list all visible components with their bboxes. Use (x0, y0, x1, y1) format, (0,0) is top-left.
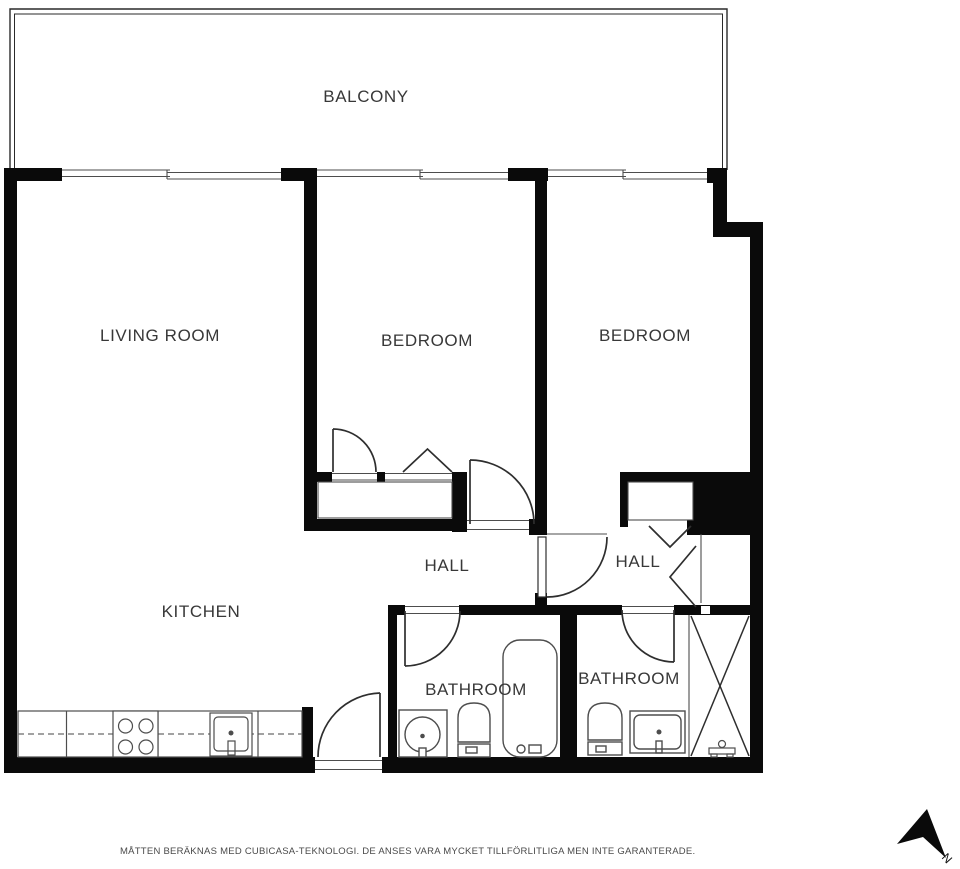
wall-right-step-vertical (713, 181, 727, 237)
room-label-hall-1: HALL (425, 556, 470, 576)
closet1-door-arc (333, 429, 376, 472)
bathroom1-door-arc (405, 611, 460, 666)
stove (113, 711, 158, 757)
bathroom2-fixtures (588, 703, 735, 757)
wall-counter-stub (302, 707, 313, 757)
front-door (318, 693, 380, 757)
window-bedroom-1 (317, 168, 508, 181)
sink-faucet-dot (229, 731, 234, 736)
room-label-hall-2: HALL (616, 552, 661, 572)
kitchen-sink (210, 713, 252, 756)
wall-bottom-left (4, 757, 315, 773)
hall2-closet-door-mark (670, 546, 696, 607)
room-label-balcony: BALCONY (323, 87, 408, 107)
wall-left (4, 168, 17, 773)
wall-bathrooms-top-c (674, 605, 763, 615)
bedroom2-door-leaf (538, 537, 546, 597)
interior-walls (302, 181, 763, 757)
toilet (458, 703, 490, 757)
bathroom2-door-arc (622, 610, 674, 662)
bathroom2-door (622, 610, 674, 662)
floor-plan-drawing: N (0, 0, 960, 869)
north-arrow-icon (897, 809, 946, 858)
thin-lines (315, 474, 701, 770)
toilet (588, 703, 622, 755)
wall-top-block-2 (508, 168, 548, 181)
room-label-bedroom-1: BEDROOM (381, 331, 473, 351)
shaft-valve (709, 741, 735, 758)
wall-closet2-block (687, 472, 750, 535)
front-door-arc (318, 693, 380, 757)
washbasin (630, 711, 685, 753)
wall-top-right-block (707, 168, 727, 183)
closet2-recess-outline (628, 482, 693, 520)
room-label-bathroom-1: BATHROOM (425, 680, 527, 700)
room-label-bedroom-2: BEDROOM (599, 326, 691, 346)
wall-closet2-left-stub (620, 472, 628, 527)
wall-right (750, 222, 763, 773)
closet1-door (333, 429, 376, 472)
bedroom2-door (538, 537, 607, 597)
wall-bathrooms-divider (560, 605, 577, 757)
wall-bedroom1-right (535, 181, 547, 535)
bathroom1-door (405, 611, 460, 666)
wall-closet1-top-a (317, 472, 332, 482)
bedroom1-door (470, 460, 534, 524)
room-label-living-room: LIVING ROOM (100, 326, 220, 346)
bedroom2-door-arc (547, 537, 607, 597)
windows (62, 168, 707, 181)
wall-bedroom1-bottom (304, 519, 467, 531)
wall-bottom-right (382, 757, 763, 773)
wall-bedroom1-left (304, 181, 317, 531)
wall-closet1-top-b (377, 472, 385, 482)
room-label-bathroom-2: BATHROOM (578, 669, 680, 689)
closet2-bifold-mark (649, 526, 691, 547)
hall2-closet-threshold (701, 606, 710, 614)
wall-bathroom1-left (388, 605, 397, 757)
floor-plan-page: N BALCONY LIVING ROOM BEDROOM BEDROOM HA… (0, 0, 960, 869)
room-label-kitchen: KITCHEN (162, 602, 241, 622)
north-arrow: N (897, 809, 955, 866)
shaft (691, 616, 749, 756)
bedroom1-door-arc (470, 460, 534, 524)
disclaimer-text: MÅTTEN BERÄKNAS MED CUBICASA-TEKNOLOGI. … (120, 846, 695, 857)
closet1-folding-door (403, 449, 452, 472)
wall-bedroom1-bottom-chunk (529, 519, 547, 535)
closet1-interior-outline (318, 482, 452, 518)
washbasin (399, 710, 447, 757)
wall-top-block-1 (281, 168, 317, 181)
kitchen-counter (18, 711, 302, 757)
window-living-room (62, 168, 281, 181)
window-bedroom-2 (548, 168, 707, 181)
wall-bathrooms-top-b (459, 605, 622, 615)
